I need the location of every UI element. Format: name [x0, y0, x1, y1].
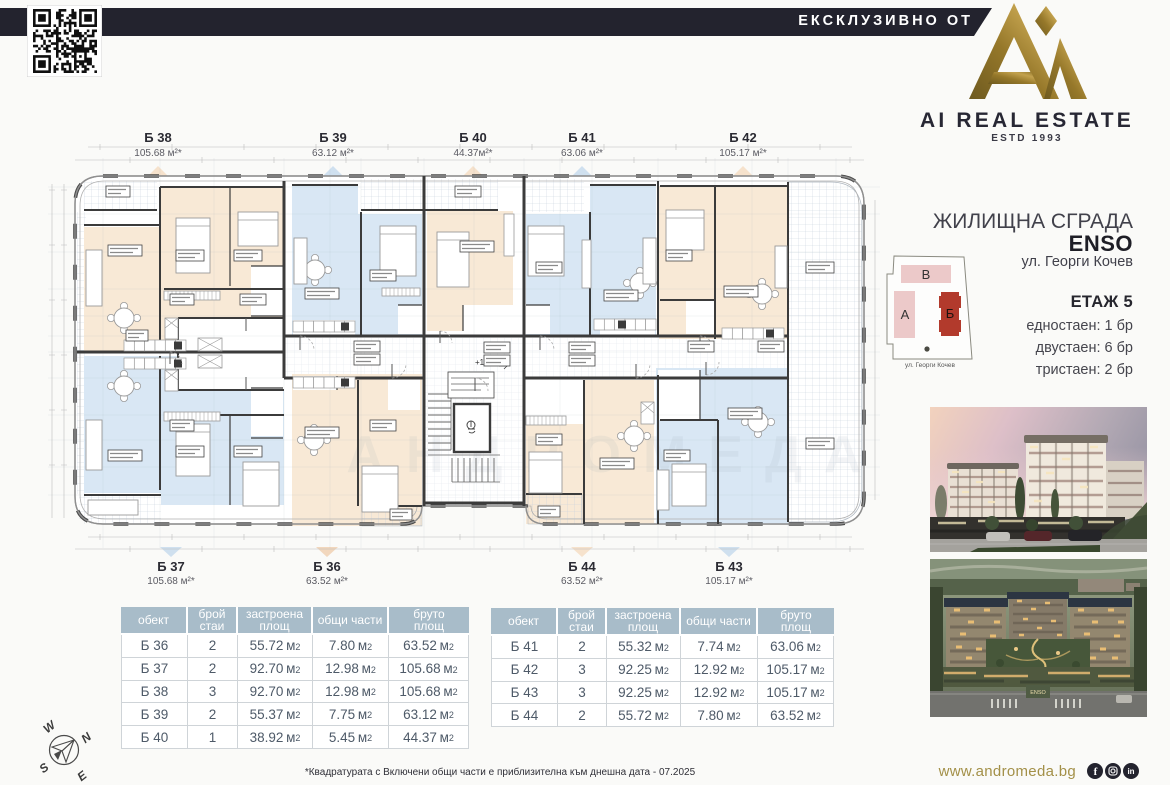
svg-text:44.37м²*: 44.37м²*	[453, 148, 492, 159]
svg-text:Б 38: Б 38	[144, 130, 171, 145]
svg-text:АНДРОМЕДА: АНДРОМЕДА	[346, 426, 883, 484]
svg-text:Б: Б	[946, 306, 955, 321]
svg-text:63.12 м²*: 63.12 м²*	[312, 148, 354, 159]
svg-text:ESTD 1993: ESTD 1993	[991, 133, 1063, 144]
svg-text:Б 44: Б 44	[568, 559, 596, 574]
svg-text:W: W	[41, 717, 60, 736]
svg-text:63.06 м²*: 63.06 м²*	[561, 148, 603, 159]
svg-text:105.17 м²*: 105.17 м²*	[705, 576, 753, 587]
svg-text:105.68 м²*: 105.68 м²*	[147, 576, 195, 587]
svg-text:А: А	[901, 307, 910, 322]
svg-text:N: N	[79, 729, 95, 746]
svg-text:105.17 м²*: 105.17 м²*	[719, 148, 767, 159]
svg-text:S: S	[37, 760, 52, 776]
svg-text:Б 36: Б 36	[313, 559, 340, 574]
svg-text:ENSO: ENSO	[1030, 690, 1046, 696]
svg-text:E: E	[75, 767, 91, 784]
svg-text:105.68 м²*: 105.68 м²*	[134, 148, 182, 159]
svg-text:f: f	[1094, 766, 1098, 778]
svg-text:ул. Георги Кочев: ул. Георги Кочев	[905, 362, 956, 369]
svg-text:Б 40: Б 40	[459, 130, 486, 145]
svg-text:В: В	[922, 267, 931, 282]
svg-text:AI REAL ESTATE: AI REAL ESTATE	[920, 109, 1134, 132]
svg-text:Б 41: Б 41	[568, 130, 595, 145]
svg-text:63.52 м²*: 63.52 м²*	[306, 576, 348, 587]
svg-text:Б 37: Б 37	[157, 559, 184, 574]
svg-text:Б 42: Б 42	[729, 130, 756, 145]
svg-text:in: in	[1127, 767, 1134, 776]
svg-text:63.52 м²*: 63.52 м²*	[561, 576, 603, 587]
svg-text:Б 43: Б 43	[715, 559, 742, 574]
svg-text:Б 39: Б 39	[319, 130, 346, 145]
